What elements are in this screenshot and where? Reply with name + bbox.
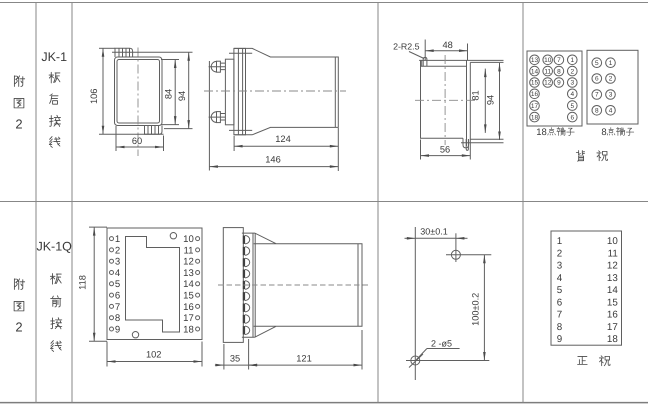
svg-text:146: 146 — [265, 155, 281, 165]
svg-text:56: 56 — [440, 145, 450, 155]
svg-text:13: 13 — [607, 273, 618, 284]
svg-text:6: 6 — [570, 114, 574, 121]
svg-text:9: 9 — [115, 324, 120, 335]
svg-text:1: 1 — [115, 234, 120, 245]
svg-text:18: 18 — [531, 114, 539, 121]
svg-text:2: 2 — [609, 76, 613, 83]
svg-text:15: 15 — [607, 297, 618, 308]
svg-text:124: 124 — [275, 134, 291, 144]
svg-text:8: 8 — [557, 322, 563, 333]
svg-text:2 -ø5: 2 -ø5 — [431, 339, 452, 349]
svg-text:5: 5 — [570, 103, 574, 110]
svg-text:17: 17 — [531, 103, 539, 110]
svg-text:5: 5 — [595, 60, 599, 67]
svg-text:30±0.1: 30±0.1 — [420, 226, 447, 236]
svg-text:3: 3 — [570, 80, 574, 87]
svg-text:8: 8 — [601, 127, 606, 138]
svg-text:8: 8 — [115, 313, 120, 324]
svg-text:14: 14 — [183, 279, 194, 290]
svg-text:6: 6 — [115, 291, 120, 302]
svg-text:10: 10 — [607, 236, 618, 247]
svg-text:3: 3 — [557, 261, 563, 272]
svg-text:14: 14 — [607, 285, 618, 296]
svg-text:9: 9 — [557, 334, 562, 345]
svg-text:4: 4 — [570, 91, 574, 98]
svg-text:17: 17 — [607, 322, 618, 333]
svg-text:15: 15 — [183, 291, 194, 302]
svg-text:1: 1 — [609, 60, 613, 67]
svg-text:16: 16 — [183, 302, 194, 313]
svg-text:4: 4 — [557, 273, 563, 284]
svg-text:121: 121 — [296, 353, 312, 363]
svg-text:106: 106 — [89, 89, 99, 105]
svg-text:18: 18 — [607, 334, 618, 345]
svg-text:18: 18 — [183, 324, 194, 335]
svg-text:60: 60 — [132, 136, 142, 146]
svg-text:2: 2 — [15, 117, 22, 132]
svg-text:10: 10 — [544, 57, 552, 64]
svg-text:4: 4 — [609, 108, 613, 115]
svg-text:12: 12 — [544, 80, 552, 87]
svg-text:12: 12 — [183, 257, 194, 268]
svg-text:JK-1Q: JK-1Q — [36, 240, 72, 254]
svg-text:9: 9 — [557, 80, 561, 87]
svg-text:48: 48 — [443, 40, 453, 50]
svg-text:11: 11 — [544, 68, 551, 75]
svg-text:94: 94 — [486, 95, 496, 105]
svg-text:17: 17 — [183, 313, 194, 324]
svg-text:118: 118 — [77, 275, 87, 290]
svg-text:8: 8 — [557, 68, 561, 75]
svg-text:2: 2 — [15, 320, 22, 335]
svg-text:84: 84 — [164, 89, 174, 99]
svg-text:6: 6 — [557, 297, 563, 308]
svg-text:3: 3 — [609, 92, 613, 99]
svg-text:10: 10 — [183, 234, 194, 245]
svg-text:16: 16 — [531, 91, 539, 98]
svg-text:JK-1: JK-1 — [41, 50, 67, 64]
svg-text:11: 11 — [184, 245, 194, 256]
svg-text:13: 13 — [531, 57, 539, 64]
svg-text:94: 94 — [177, 91, 187, 101]
svg-text:3: 3 — [115, 257, 120, 268]
svg-text:14: 14 — [531, 68, 539, 75]
svg-text:2: 2 — [557, 248, 562, 259]
svg-text:18: 18 — [536, 127, 547, 138]
svg-text:1: 1 — [570, 57, 574, 64]
svg-text:2: 2 — [115, 245, 120, 256]
svg-text:13: 13 — [183, 268, 194, 279]
svg-text:15: 15 — [531, 80, 539, 87]
svg-text:1: 1 — [557, 236, 562, 247]
svg-text:5: 5 — [557, 285, 563, 296]
svg-text:2-R2.5: 2-R2.5 — [393, 42, 420, 52]
svg-text:7: 7 — [557, 57, 561, 64]
svg-text:6: 6 — [595, 76, 599, 83]
svg-text:8: 8 — [595, 108, 599, 115]
svg-text:7: 7 — [595, 92, 599, 99]
svg-text:5: 5 — [115, 279, 120, 290]
svg-text:35: 35 — [230, 353, 240, 363]
svg-text:4: 4 — [115, 268, 121, 279]
svg-text:102: 102 — [146, 350, 162, 360]
svg-text:12: 12 — [607, 261, 618, 272]
svg-text:7: 7 — [115, 302, 120, 313]
svg-text:2: 2 — [570, 68, 574, 75]
svg-text:16: 16 — [607, 310, 618, 321]
svg-text:11: 11 — [608, 248, 618, 259]
svg-text:81: 81 — [471, 90, 481, 100]
svg-text:100±0.2: 100±0.2 — [471, 293, 481, 326]
svg-text:7: 7 — [557, 310, 562, 321]
